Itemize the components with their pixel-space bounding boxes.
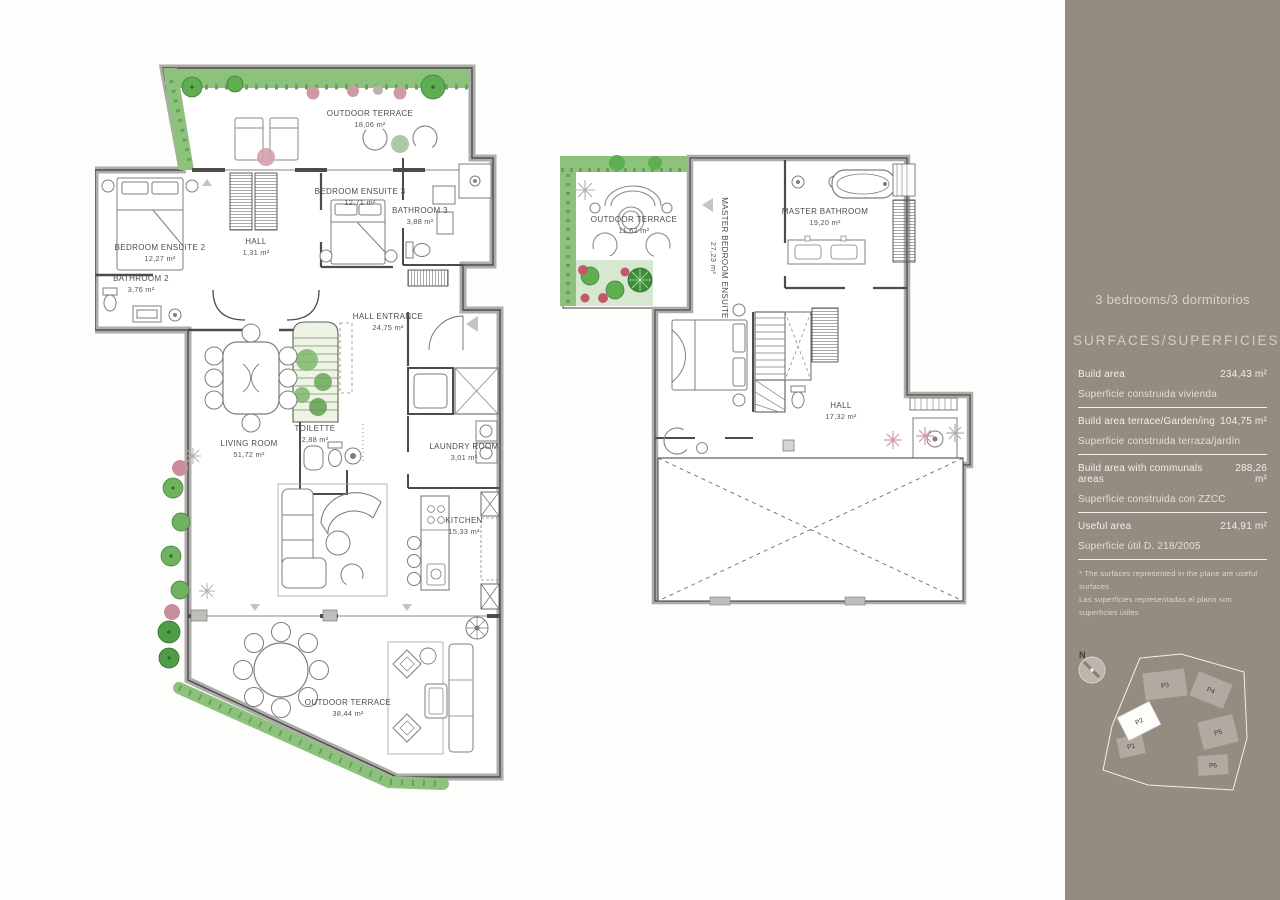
wall-pier xyxy=(845,597,865,605)
room-label-hall: HALL 1,31 m² xyxy=(243,236,270,258)
room-area: 11,62 m² xyxy=(591,226,677,237)
row-value: 234,43 m² xyxy=(1220,369,1267,380)
row-value: 288,26 m² xyxy=(1223,463,1267,485)
room-label-outdoor-terrace-top: OUTDOOR TERRACE 18,06 m² xyxy=(327,108,413,130)
divider xyxy=(1078,454,1267,455)
wardrobe xyxy=(230,173,252,230)
table-row: Useful area 214,91 m² xyxy=(1078,521,1267,532)
siteplan-buildings: P3 P4 P5 P6 xyxy=(1116,669,1239,776)
divider xyxy=(1078,559,1267,560)
row-label-en: Build area terrace/Garden/ing xyxy=(1078,416,1215,427)
footnote-en: * The surfaces represented in the plane … xyxy=(1079,568,1266,594)
room-label-hall-entrance: HALL ENTRANCE 24,75 m² xyxy=(353,311,424,333)
room-name: HALL ENTRANCE xyxy=(353,312,424,321)
radiator xyxy=(408,270,448,286)
row-label-es: Superficie construida terraza/jardín xyxy=(1078,436,1267,447)
footnote-es: Las superficies representadas el plano s… xyxy=(1079,594,1266,620)
compass-north-label: N xyxy=(1079,650,1086,660)
room-name: BEDROOM ENSUITE 2 xyxy=(115,243,206,252)
room-name: LIVING ROOM xyxy=(220,439,277,448)
surfaces-heading: SURFACES/SUPERFICIES xyxy=(1073,333,1272,348)
room-label-master-bathroom: MASTER BATHROOM 19,20 m² xyxy=(782,206,868,228)
room-name: OUTDOOR TERRACE xyxy=(591,215,677,224)
room-label-bedroom-ensuite-2: BEDROOM ENSUITE 2 12,27 m² xyxy=(115,242,206,264)
unit-type-title: 3 bedrooms/3 dormitorios xyxy=(1077,292,1268,307)
room-label-bathroom-3: BATHROOM 3 3,88 m² xyxy=(392,205,448,227)
room-area: 51,72 m² xyxy=(220,450,277,461)
room-area: 3,01 m² xyxy=(429,453,498,464)
wall-pier xyxy=(323,610,337,621)
room-label-outdoor-terrace-bottom: OUTDOOR TERRACE 38,44 m² xyxy=(305,697,391,719)
room-name: OUTDOOR TERRACE xyxy=(327,109,413,118)
building-p4: P4 xyxy=(1189,671,1232,709)
terrace-plant-pink xyxy=(257,148,275,166)
building-p2-highlighted: P2 xyxy=(1117,701,1161,741)
room-area: 3,76 m² xyxy=(113,285,169,296)
wall-pier xyxy=(710,597,730,605)
wardrobe xyxy=(255,173,277,230)
building-p3: P3 xyxy=(1142,669,1187,701)
room-area: 3,88 m² xyxy=(392,217,448,228)
row-label-es: Superficie construida con ZZCC xyxy=(1078,494,1267,505)
row-label-es: Superficie construida vivienda xyxy=(1078,389,1267,400)
room-name: MASTER BATHROOM xyxy=(782,207,868,216)
room-name: BEDROOM ENSUITE 3 xyxy=(315,187,406,196)
building-p5: P5 xyxy=(1197,714,1239,750)
room-label-laundry-room: LAUNDRY ROOM 3,01 m² xyxy=(429,441,498,463)
room-name: HALL xyxy=(830,401,851,410)
room-label-living-room: LIVING ROOM 51,72 m² xyxy=(220,438,277,460)
room-area: 24,75 m² xyxy=(353,323,424,334)
room-name: KITCHEN xyxy=(445,516,483,525)
info-sidebar: 3 bedrooms/3 dormitorios SURFACES/SUPERF… xyxy=(1065,0,1280,900)
room-area: 19,20 m² xyxy=(782,218,868,229)
room-area: 1,31 m² xyxy=(243,248,270,259)
room-area: 12,27 m² xyxy=(115,254,206,265)
shower-room xyxy=(910,398,957,460)
room-name: OUTDOOR TERRACE xyxy=(305,698,391,707)
row-label-en: Useful area xyxy=(1078,521,1131,532)
compass-icon xyxy=(1079,657,1105,683)
elevator xyxy=(408,368,498,414)
divider xyxy=(1078,512,1267,513)
row-value: 104,75 m² xyxy=(1220,416,1267,427)
wardrobe xyxy=(812,308,838,362)
divider xyxy=(1078,407,1267,408)
room-area: 17,32 m² xyxy=(825,412,856,423)
room-name: BATHROOM 2 xyxy=(113,274,169,283)
room-name: TOILETTE xyxy=(295,424,336,433)
bedroom3-bed xyxy=(320,200,397,264)
void-area xyxy=(658,458,963,601)
room-area: 15,33 m² xyxy=(445,527,483,538)
room-name: BATHROOM 3 xyxy=(392,206,448,215)
footnote: * The surfaces represented in the plane … xyxy=(1079,568,1266,620)
room-label-hall-2: HALL 17,32 m² xyxy=(825,400,856,422)
building-p6: P6 xyxy=(1197,754,1228,776)
siteplan-wrap: N P3 P4 xyxy=(1065,633,1280,808)
page: OUTDOOR TERRACE 18,06 m² BEDROOM ENSUITE… xyxy=(0,0,1280,900)
room-area: 2,88 m² xyxy=(295,435,336,446)
siteplan-drawing: N P3 P4 xyxy=(1065,633,1280,808)
svg-text:P6: P6 xyxy=(1209,762,1218,770)
room-name: MASTER BEDROOM ENSUITE xyxy=(720,197,729,319)
row-label-es: Superficie útil D. 218/2005 xyxy=(1078,541,1267,552)
room-label-bathroom-2: BATHROOM 2 3,76 m² xyxy=(113,273,169,295)
wc-fixtures xyxy=(791,386,805,408)
wall-pier xyxy=(191,610,207,621)
table-row: Build area 234,43 m² xyxy=(1078,369,1267,380)
room-label-master-bedroom: MASTER BEDROOM ENSUITE 27,23 m² xyxy=(708,197,730,319)
surfaces-table: Build area 234,43 m² Superficie construi… xyxy=(1078,369,1267,560)
room-label-toilette: TOILETTE 2,88 m² xyxy=(295,423,336,445)
room-name: HALL xyxy=(245,237,266,246)
row-label-en: Build area with communals areas xyxy=(1078,463,1223,485)
plant-gray xyxy=(199,583,215,599)
table-row: Build area with communals areas 288,26 m… xyxy=(1078,463,1267,485)
room-label-kitchen: KITCHEN 15,33 m² xyxy=(445,515,483,537)
room-area: 27,23 m² xyxy=(708,197,719,319)
room-area: 18,06 m² xyxy=(327,120,413,131)
row-label-en: Build area xyxy=(1078,369,1125,380)
table-row: Build area terrace/Garden/ing 104,75 m² xyxy=(1078,416,1267,427)
row-value: 214,91 m² xyxy=(1220,521,1267,532)
wardrobe xyxy=(893,200,915,262)
terrace-plant-green xyxy=(391,135,409,153)
room-label-outdoor-terrace-2: OUTDOOR TERRACE 11,62 m² xyxy=(591,214,677,236)
room-name: LAUNDRY ROOM xyxy=(429,442,498,451)
svg-text:P3: P3 xyxy=(1161,682,1170,690)
room-area: 38,44 m² xyxy=(305,709,391,720)
